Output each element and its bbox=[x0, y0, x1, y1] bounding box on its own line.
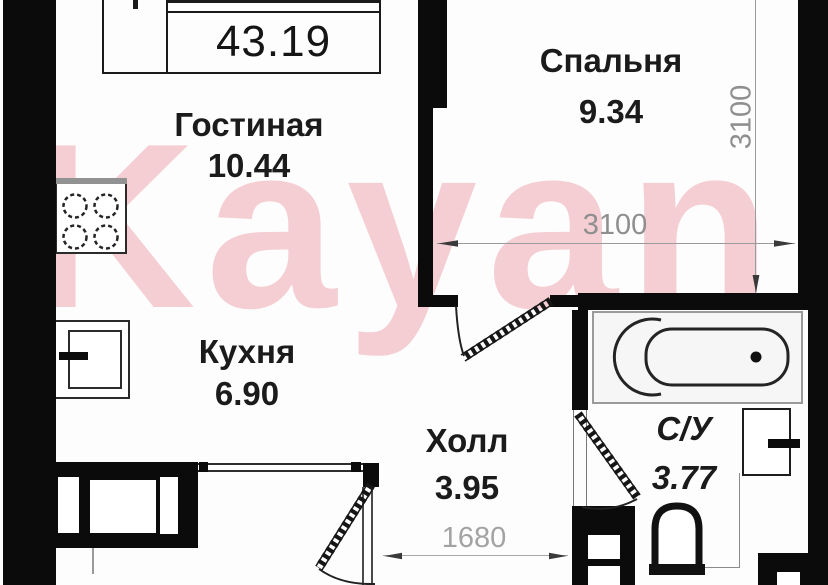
room-area: 3.95 bbox=[426, 470, 509, 506]
wall-living-bedroom-thin bbox=[418, 108, 433, 300]
table-top-edge bbox=[166, 0, 379, 3]
room-name: С/У bbox=[652, 411, 716, 447]
dim-text-bedroom-height: 3100 bbox=[726, 85, 759, 150]
dim-text-bedroom-width: 3100 bbox=[583, 209, 648, 242]
wall-bedroom-hall-left bbox=[418, 295, 458, 307]
bath-niche-line-v bbox=[739, 473, 740, 568]
wall-bathroom-left bbox=[572, 310, 588, 410]
total-area-table: 43.19 bbox=[102, 0, 381, 74]
wall-living-bedroom-thick bbox=[418, 0, 447, 108]
floor-plan: Kayan 43.19 Гостин bbox=[0, 0, 828, 585]
room-label-bedroom: Спальня 9.34 bbox=[540, 43, 683, 130]
balcony-door-post bbox=[363, 463, 379, 487]
wall-bathroom-top bbox=[578, 293, 828, 310]
window-end-tick-right bbox=[351, 462, 361, 472]
room-name: Холл bbox=[426, 423, 509, 459]
wall-exterior-left bbox=[3, 0, 56, 585]
bath-door-jamb-right bbox=[586, 408, 587, 507]
room-area: 10.44 bbox=[174, 148, 323, 184]
room-name: Кухня bbox=[199, 334, 295, 370]
door-swing-arc bbox=[319, 569, 375, 584]
bottom-right-notch bbox=[777, 572, 800, 585]
bath-niche-line-h bbox=[700, 567, 740, 568]
wall-exterior-right-bottom bbox=[808, 310, 828, 555]
wall-exterior-right-top bbox=[798, 0, 828, 310]
balcony-door-icon bbox=[316, 483, 375, 584]
dim-line-hall-width bbox=[383, 555, 568, 556]
bathroom-door-icon bbox=[575, 412, 640, 509]
room-area: 9.34 bbox=[540, 94, 683, 130]
entry-door-inset bbox=[588, 535, 620, 559]
bath-door-jamb-left bbox=[573, 408, 574, 507]
room-name: Спальня bbox=[540, 43, 683, 79]
shaft-window bbox=[90, 480, 156, 533]
kitchen-window-line2 bbox=[198, 470, 365, 472]
dim-text-hall-width: 1680 bbox=[442, 522, 507, 555]
wall-bedroom-hall-right bbox=[550, 295, 580, 307]
entry-door-inset-2 bbox=[588, 566, 620, 585]
dim-tick-small bbox=[92, 548, 94, 574]
kitchen-sink-faucet bbox=[59, 352, 88, 360]
room-area: 3.77 bbox=[652, 460, 716, 496]
room-label-living: Гостиная 10.44 bbox=[174, 107, 323, 184]
window-end-tick-left bbox=[199, 462, 208, 472]
shaft-slot-right bbox=[160, 477, 178, 534]
stove-icon bbox=[55, 178, 127, 254]
total-area-value: 43.19 bbox=[168, 12, 379, 72]
room-label-bathroom: С/У 3.77 bbox=[652, 411, 716, 496]
kitchen-window bbox=[198, 463, 365, 465]
room-name: Гостиная bbox=[174, 107, 323, 143]
balcony-door-jamb-left bbox=[362, 487, 364, 585]
stove-back-edge bbox=[55, 178, 127, 184]
room-label-kitchen: Кухня 6.90 bbox=[199, 334, 295, 412]
washbasin-faucet bbox=[768, 439, 800, 448]
dim-line-bedroom-width bbox=[437, 243, 795, 244]
table-cutoff-mark bbox=[133, 0, 138, 9]
shaft-slot-left bbox=[58, 477, 79, 533]
toilet-icon bbox=[649, 506, 705, 575]
room-label-hall: Холл 3.95 bbox=[426, 423, 509, 506]
room-area: 6.90 bbox=[199, 376, 295, 412]
balcony-door-jamb-right bbox=[371, 487, 373, 585]
